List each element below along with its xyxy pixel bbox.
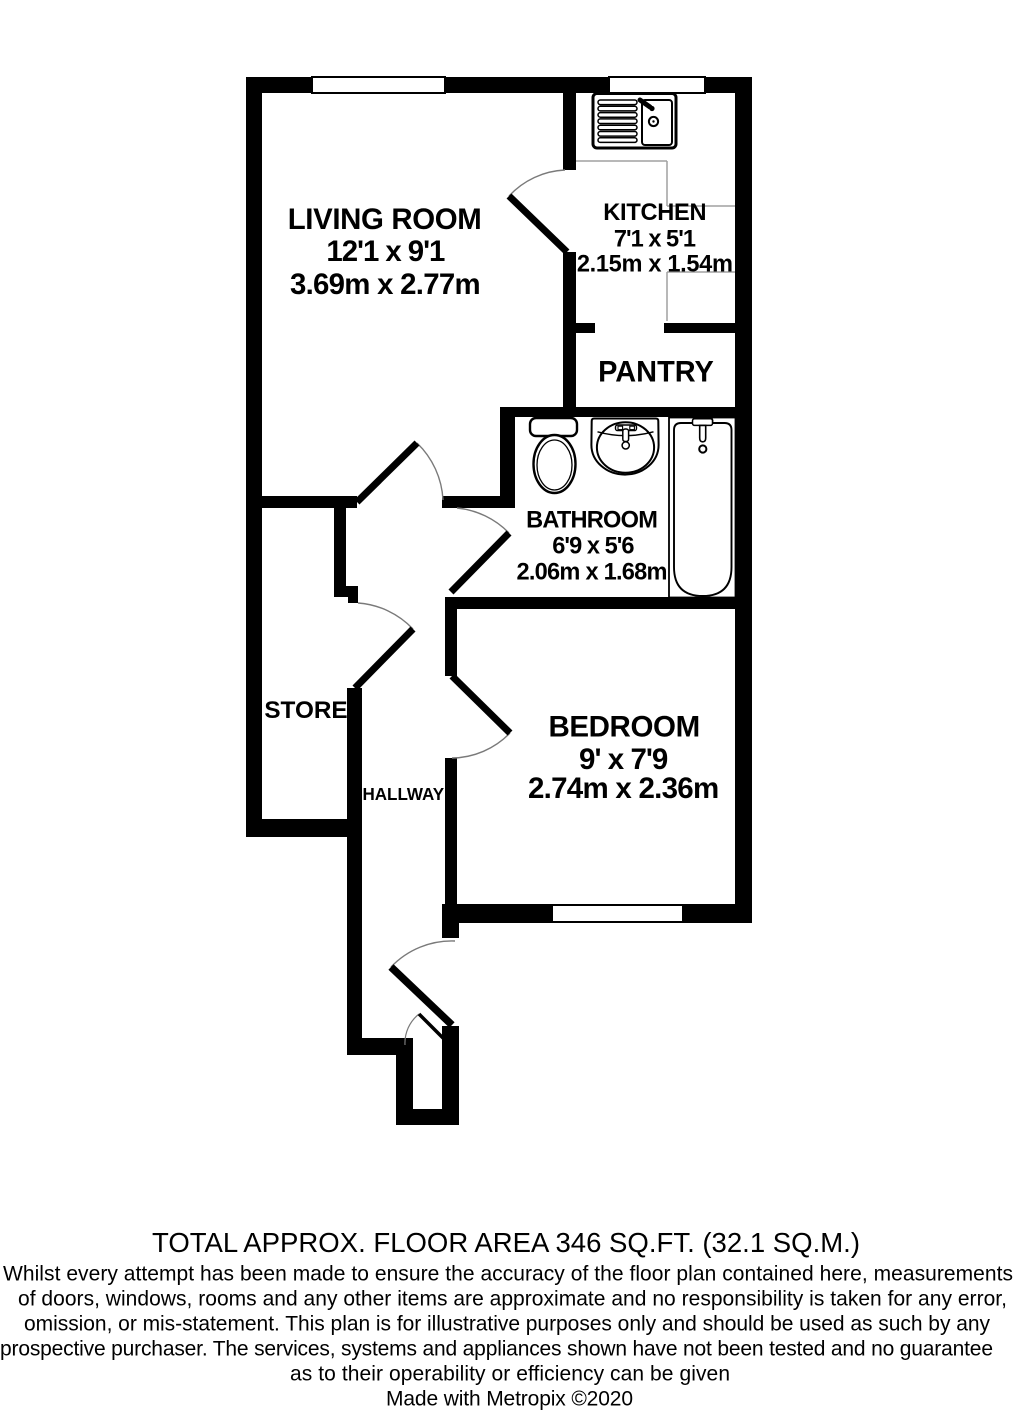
svg-text:2.15m x 1.54m: 2.15m x 1.54m [577,252,733,278]
svg-text:BATHROOM: BATHROOM [526,508,658,534]
svg-text:omission, or mis-statement. Th: omission, or mis-statement. This plan is… [24,1313,991,1336]
svg-text:TOTAL APPROX. FLOOR AREA 346 S: TOTAL APPROX. FLOOR AREA 346 SQ.FT. (32.… [152,1227,860,1258]
svg-text:as to their operability or eff: as to their operability or efficiency ca… [290,1363,730,1386]
svg-text:KITCHEN: KITCHEN [603,200,706,226]
svg-text:6'9 x 5'6: 6'9 x 5'6 [552,534,634,560]
svg-text:Made with Metropix ©2020: Made with Metropix ©2020 [386,1388,633,1411]
svg-text:2.74m x 2.36m: 2.74m x 2.36m [528,772,719,805]
svg-text:prospective purchaser. The ser: prospective purchaser. The services, sys… [0,1338,993,1361]
svg-text:BEDROOM: BEDROOM [548,711,700,744]
svg-text:STORE: STORE [264,697,347,724]
svg-text:LIVING ROOM: LIVING ROOM [288,203,482,236]
svg-text:3.69m x 2.77m: 3.69m x 2.77m [290,268,481,301]
svg-text:12'1 x 9'1: 12'1 x 9'1 [326,235,445,268]
svg-text:PANTRY: PANTRY [598,356,714,389]
svg-text:HALLWAY: HALLWAY [362,784,444,804]
svg-text:of doors, windows, rooms and a: of doors, windows, rooms and any other i… [18,1288,1007,1311]
svg-text:7'1 x 5'1: 7'1 x 5'1 [614,227,696,253]
svg-text:Whilst every attempt has been: Whilst every attempt has been made to en… [3,1263,1013,1286]
svg-text:2.06m x 1.68m: 2.06m x 1.68m [517,560,668,586]
